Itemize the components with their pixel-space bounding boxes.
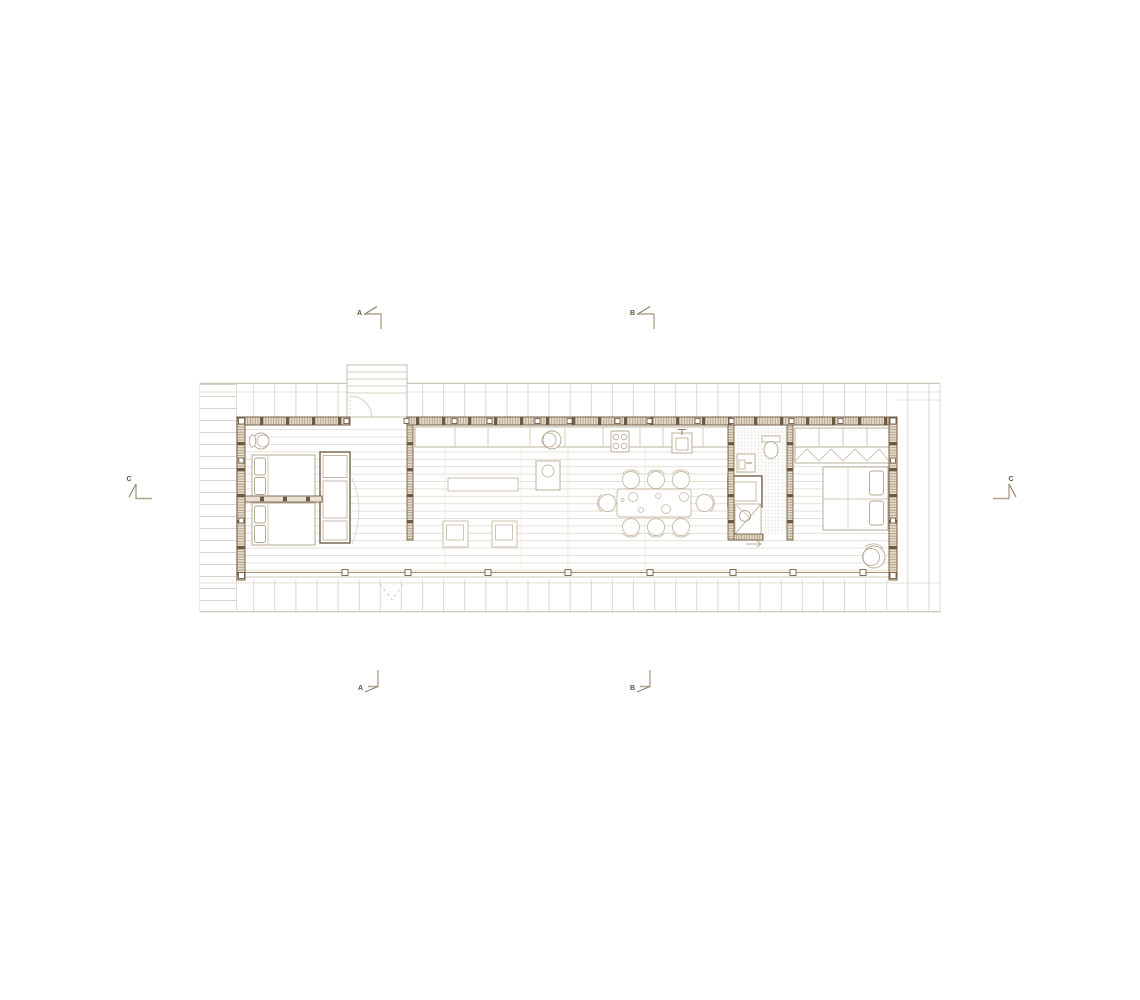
floor-plan-page: A B A B C C xyxy=(0,0,1140,1000)
section-marker-a-top: A xyxy=(357,307,381,330)
section-marker-b-bottom: B xyxy=(630,670,650,692)
bed-right xyxy=(823,467,888,530)
bed-2 xyxy=(252,503,315,545)
bed-1 xyxy=(252,455,315,497)
section-marker-c-right: C xyxy=(993,476,1016,499)
section-marker-c-left: C xyxy=(126,476,152,499)
bathroom xyxy=(728,425,787,547)
right-wall xyxy=(889,417,897,580)
bedroom-divider-wall xyxy=(245,496,322,502)
section-label-a-bottom: A xyxy=(358,685,363,692)
bathroom-basin xyxy=(737,454,755,472)
section-label-b-bottom: B xyxy=(630,685,635,692)
pillow xyxy=(870,501,884,525)
closet-right xyxy=(795,428,889,463)
section-marker-a-bottom: A xyxy=(358,670,378,692)
glass-facade xyxy=(245,570,889,578)
deck-left-strip xyxy=(200,383,237,612)
section-label-c-left: C xyxy=(126,476,131,483)
shower xyxy=(735,504,761,534)
entry-partition-wall xyxy=(407,425,413,540)
pillow xyxy=(255,478,266,495)
pillow xyxy=(870,471,884,495)
pillow xyxy=(255,526,266,543)
kitchen-island xyxy=(536,461,560,490)
pillow xyxy=(255,506,266,523)
section-marker-b-top: B xyxy=(630,307,654,330)
section-label-c-right: C xyxy=(1008,476,1013,483)
cooktop xyxy=(611,431,629,452)
ottoman xyxy=(492,521,517,547)
dining-table xyxy=(617,489,691,517)
bedroom-left-2 xyxy=(252,503,315,545)
pillow xyxy=(255,458,266,475)
bench xyxy=(448,478,518,491)
kitchen-sink xyxy=(672,429,692,453)
floor-plan-canvas: A B A B C C xyxy=(0,0,1140,1000)
ottoman xyxy=(443,521,468,547)
section-label-b-top: B xyxy=(630,310,635,317)
left-wall xyxy=(237,417,245,580)
entry-stairs xyxy=(347,365,407,418)
section-label-a-top: A xyxy=(357,310,362,317)
